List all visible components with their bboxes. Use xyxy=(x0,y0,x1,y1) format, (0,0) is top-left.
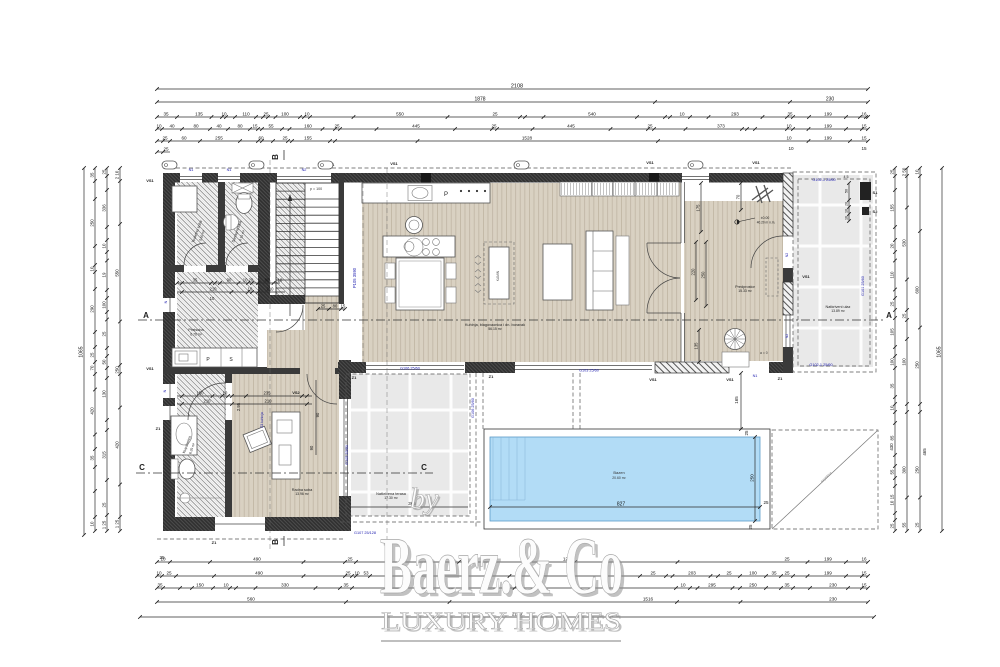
svg-text:VS1: VS1 xyxy=(390,161,398,166)
svg-text:Pretsoba: Pretsoba xyxy=(188,328,204,332)
svg-text:15: 15 xyxy=(252,124,258,129)
svg-text:10: 10 xyxy=(786,136,792,141)
svg-text:100: 100 xyxy=(749,571,757,576)
svg-text:70: 70 xyxy=(736,194,741,199)
svg-text:199: 199 xyxy=(824,557,832,562)
svg-text:110: 110 xyxy=(890,271,895,279)
svg-text:N1: N1 xyxy=(753,374,758,378)
svg-text:100: 100 xyxy=(890,358,895,366)
svg-text:VS1: VS1 xyxy=(646,160,654,165)
svg-text:16: 16 xyxy=(845,216,849,220)
svg-text:827: 827 xyxy=(617,502,626,508)
svg-text:N2: N2 xyxy=(302,168,307,172)
svg-text:160: 160 xyxy=(304,124,312,129)
svg-text:10: 10 xyxy=(679,112,685,117)
svg-text:490: 490 xyxy=(253,557,261,562)
svg-text:Z1: Z1 xyxy=(778,376,783,381)
svg-text:55: 55 xyxy=(890,469,895,474)
svg-text:VS1: VS1 xyxy=(649,377,657,382)
svg-text:P: P xyxy=(444,192,448,198)
svg-text:25: 25 xyxy=(763,500,769,505)
svg-text:25: 25 xyxy=(748,524,753,530)
svg-text:25: 25 xyxy=(650,571,656,576)
svg-text:1065: 1065 xyxy=(79,346,85,357)
svg-text:25: 25 xyxy=(726,571,732,576)
svg-text:35: 35 xyxy=(193,278,198,283)
svg-text:336: 336 xyxy=(102,204,107,212)
svg-text:420: 420 xyxy=(115,441,120,449)
svg-text:35: 35 xyxy=(343,583,349,588)
svg-text:15: 15 xyxy=(861,136,867,141)
svg-text:250: 250 xyxy=(749,583,757,588)
svg-text:G106 25/60: G106 25/60 xyxy=(471,398,475,418)
svg-text:G102-1 25/60: G102-1 25/60 xyxy=(809,363,832,367)
svg-text:by: by xyxy=(410,482,439,515)
svg-text:15.33 m²: 15.33 m² xyxy=(738,289,752,293)
svg-text:150: 150 xyxy=(196,583,204,588)
svg-text:1 25: 1 25 xyxy=(102,520,107,529)
svg-text:G101 25/60: G101 25/60 xyxy=(861,276,865,296)
svg-text:25: 25 xyxy=(890,169,895,174)
svg-text:C: C xyxy=(139,463,145,472)
svg-text:KAMIN: KAMIN xyxy=(496,270,500,281)
svg-text:LUXURY HOMES: LUXURY HOMES xyxy=(381,608,621,635)
svg-text:13.96 m²: 13.96 m² xyxy=(295,492,309,496)
svg-text:15: 15 xyxy=(861,583,867,588)
svg-text:25: 25 xyxy=(890,523,895,528)
svg-text:25: 25 xyxy=(345,571,351,576)
svg-text:315: 315 xyxy=(102,451,107,459)
svg-text:35: 35 xyxy=(890,383,895,388)
svg-text:25: 25 xyxy=(102,502,107,507)
svg-text:A: A xyxy=(143,311,149,320)
svg-text:B: B xyxy=(271,154,280,160)
svg-text:10: 10 xyxy=(788,146,794,151)
svg-text:50: 50 xyxy=(102,359,107,364)
svg-text:S2: S2 xyxy=(873,209,879,214)
svg-text:2.95: 2.95 xyxy=(236,402,241,411)
svg-text:290: 290 xyxy=(90,305,95,313)
svg-text:445: 445 xyxy=(567,124,575,129)
svg-text:235: 235 xyxy=(264,391,272,396)
svg-text:230: 230 xyxy=(826,97,835,103)
svg-text:P105 3590: P105 3590 xyxy=(352,267,357,288)
svg-text:13.89 m²: 13.89 m² xyxy=(831,309,845,313)
svg-text:25: 25 xyxy=(334,124,340,129)
svg-text:A: A xyxy=(886,311,892,320)
svg-text:70: 70 xyxy=(90,365,95,370)
svg-text:1516: 1516 xyxy=(643,597,654,602)
svg-text:420: 420 xyxy=(90,407,95,415)
svg-text:10: 10 xyxy=(102,243,107,248)
svg-text:25: 25 xyxy=(492,112,498,117)
svg-text:6.76 m²: 6.76 m² xyxy=(190,333,202,337)
svg-text:25: 25 xyxy=(162,136,168,141)
svg-text:10: 10 xyxy=(221,112,227,117)
svg-text:100: 100 xyxy=(102,301,107,309)
svg-text:110: 110 xyxy=(242,112,250,117)
svg-text:B: B xyxy=(271,539,280,545)
svg-text:10 20: 10 20 xyxy=(243,278,254,283)
svg-text:230: 230 xyxy=(829,597,837,602)
svg-text:40: 40 xyxy=(169,124,175,129)
svg-text:550: 550 xyxy=(115,269,120,277)
svg-text:85: 85 xyxy=(890,435,895,440)
svg-text:2 50: 2 50 xyxy=(902,167,907,176)
svg-text:15: 15 xyxy=(861,124,867,129)
svg-text:60: 60 xyxy=(258,136,264,141)
svg-text:203: 203 xyxy=(688,571,696,576)
svg-text:VS1: VS1 xyxy=(726,377,734,382)
svg-text:155: 155 xyxy=(304,136,312,141)
svg-text:373: 373 xyxy=(717,124,725,129)
svg-text:1528: 1528 xyxy=(522,136,533,141)
svg-text:210: 210 xyxy=(267,287,275,292)
svg-text:25: 25 xyxy=(902,313,907,318)
svg-text:250: 250 xyxy=(750,474,755,482)
svg-text:4 5: 4 5 xyxy=(844,175,849,179)
svg-text:10: 10 xyxy=(680,583,686,588)
svg-text:Z3 kuhinja: Z3 kuhinja xyxy=(260,412,264,428)
svg-text:100: 100 xyxy=(902,358,907,366)
svg-text:55: 55 xyxy=(902,522,907,527)
svg-text:25: 25 xyxy=(102,169,107,174)
svg-text:199: 199 xyxy=(824,136,832,141)
svg-text:220: 220 xyxy=(691,268,696,276)
svg-text:40.20 m n.m.: 40.20 m n.m. xyxy=(757,221,776,225)
svg-text:VS2: VS2 xyxy=(292,390,300,395)
svg-text:VS1: VS1 xyxy=(146,366,154,371)
svg-text:80: 80 xyxy=(265,278,270,283)
svg-text:2 10: 2 10 xyxy=(115,170,120,179)
svg-text:N: N xyxy=(163,389,167,392)
svg-text:35: 35 xyxy=(163,112,169,117)
svg-text:17.30 m²: 17.30 m² xyxy=(384,496,398,500)
svg-text:G102-1 25/60: G102-1 25/60 xyxy=(812,178,835,182)
svg-text:Z1: Z1 xyxy=(212,540,217,545)
svg-text:25: 25 xyxy=(784,557,790,562)
svg-text:490: 490 xyxy=(255,571,263,576)
svg-text:25: 25 xyxy=(166,571,172,576)
svg-text:N2: N2 xyxy=(785,253,789,257)
svg-text:20: 20 xyxy=(845,202,849,206)
svg-text:165: 165 xyxy=(734,396,739,404)
svg-text:25: 25 xyxy=(647,124,653,129)
svg-text:15: 15 xyxy=(861,146,867,151)
svg-text:1065: 1065 xyxy=(937,346,943,357)
svg-text:VS1: VS1 xyxy=(752,160,760,165)
svg-text:199: 199 xyxy=(824,112,832,117)
svg-text:Bazen: Bazen xyxy=(613,470,624,475)
svg-text:35: 35 xyxy=(787,112,793,117)
svg-text:a = 0: a = 0 xyxy=(760,351,768,355)
svg-text:465: 465 xyxy=(922,448,927,456)
svg-text:35: 35 xyxy=(157,583,163,588)
svg-text:80: 80 xyxy=(237,124,243,129)
svg-text:135: 135 xyxy=(195,112,203,117)
svg-text:255: 255 xyxy=(215,136,223,141)
svg-text:25: 25 xyxy=(321,304,326,309)
svg-text:G107 25/128: G107 25/128 xyxy=(354,531,376,535)
svg-text:25: 25 xyxy=(90,352,95,357)
svg-text:16: 16 xyxy=(861,112,867,117)
svg-text:55: 55 xyxy=(268,124,274,129)
svg-text:2108: 2108 xyxy=(511,84,523,90)
svg-text:155: 155 xyxy=(890,204,895,212)
svg-text:175: 175 xyxy=(696,204,701,212)
svg-text:10: 10 xyxy=(890,405,895,410)
svg-text:25: 25 xyxy=(163,147,169,152)
svg-text:15: 15 xyxy=(341,304,346,309)
svg-text:540: 540 xyxy=(588,112,596,117)
svg-text:25: 25 xyxy=(282,136,288,141)
svg-text:330: 330 xyxy=(281,583,289,588)
svg-text:19: 19 xyxy=(102,272,107,277)
svg-text:20: 20 xyxy=(890,243,895,248)
svg-text:10: 10 xyxy=(90,266,95,271)
svg-text:35: 35 xyxy=(90,172,95,177)
svg-text:293: 293 xyxy=(731,112,739,117)
svg-text:Z1: Z1 xyxy=(352,375,357,380)
svg-text:550: 550 xyxy=(396,112,404,117)
svg-text:530: 530 xyxy=(902,239,907,247)
svg-text:445: 445 xyxy=(412,124,420,129)
svg-text:40: 40 xyxy=(216,124,222,129)
svg-text:25: 25 xyxy=(491,124,497,129)
svg-text:10: 10 xyxy=(223,391,228,396)
svg-text:50: 50 xyxy=(845,189,849,193)
svg-text:C: C xyxy=(421,463,427,472)
svg-text:25: 25 xyxy=(915,522,920,527)
svg-text:Baerz.& Co: Baerz.& Co xyxy=(380,520,623,611)
svg-text:199: 199 xyxy=(824,571,832,576)
svg-text:10: 10 xyxy=(223,583,229,588)
svg-text:Z1: Z1 xyxy=(156,426,161,431)
svg-text:56.15 m²: 56.15 m² xyxy=(488,327,502,331)
svg-text:N1: N1 xyxy=(227,168,232,172)
svg-text:250: 250 xyxy=(115,366,120,374)
svg-text:10: 10 xyxy=(915,169,920,174)
svg-text:G105 25/60: G105 25/60 xyxy=(345,445,349,465)
svg-text:25: 25 xyxy=(744,430,749,436)
svg-text:80: 80 xyxy=(333,304,338,309)
svg-text:250: 250 xyxy=(915,466,920,474)
svg-text:10 15: 10 15 xyxy=(890,494,895,506)
svg-text:53: 53 xyxy=(363,571,369,576)
svg-text:G103 25/60: G103 25/60 xyxy=(579,369,599,373)
svg-text:250: 250 xyxy=(701,271,706,279)
svg-text:199: 199 xyxy=(824,124,832,129)
svg-text:10: 10 xyxy=(210,296,215,301)
svg-text:130: 130 xyxy=(102,390,107,398)
svg-text:150: 150 xyxy=(197,391,205,396)
svg-text:p = 100: p = 100 xyxy=(310,187,322,191)
svg-text:Z1: Z1 xyxy=(489,374,494,379)
svg-text:295: 295 xyxy=(708,583,716,588)
svg-text:90: 90 xyxy=(227,278,232,283)
svg-text:10: 10 xyxy=(278,278,283,283)
svg-text:35: 35 xyxy=(90,455,95,460)
svg-text:210: 210 xyxy=(204,399,212,404)
svg-text:430: 430 xyxy=(889,443,894,451)
svg-text:25: 25 xyxy=(890,301,895,306)
svg-text:230: 230 xyxy=(829,583,837,588)
svg-text:15: 15 xyxy=(861,571,867,576)
svg-text:N1: N1 xyxy=(189,168,194,172)
svg-text:210: 210 xyxy=(265,399,273,404)
svg-text:1 25: 1 25 xyxy=(115,519,120,528)
svg-text:10: 10 xyxy=(156,571,162,576)
svg-text:60: 60 xyxy=(181,136,187,141)
svg-text:S1: S1 xyxy=(873,190,879,195)
svg-text:VS1: VS1 xyxy=(802,274,810,279)
svg-text:25: 25 xyxy=(102,331,107,336)
svg-text:100: 100 xyxy=(281,112,289,117)
svg-text:250: 250 xyxy=(90,219,95,227)
svg-text:250: 250 xyxy=(915,361,920,369)
svg-text:10: 10 xyxy=(248,287,253,292)
svg-text:210: 210 xyxy=(210,287,218,292)
svg-text:10: 10 xyxy=(156,124,162,129)
svg-text:80: 80 xyxy=(193,124,199,129)
svg-text:600: 600 xyxy=(915,286,920,294)
svg-text:25: 25 xyxy=(784,571,790,576)
svg-text:20.60 m²: 20.60 m² xyxy=(612,476,626,480)
svg-text:VS1: VS1 xyxy=(146,178,154,183)
svg-text:10: 10 xyxy=(90,521,95,526)
svg-text:10: 10 xyxy=(786,124,792,129)
svg-text:35: 35 xyxy=(784,583,790,588)
svg-text:10: 10 xyxy=(304,112,310,117)
svg-text:N: N xyxy=(164,300,168,303)
svg-text:35: 35 xyxy=(771,571,777,576)
svg-text:25: 25 xyxy=(159,555,165,560)
svg-text:10: 10 xyxy=(845,209,849,213)
svg-text:10: 10 xyxy=(354,571,360,576)
svg-text:25: 25 xyxy=(263,112,269,117)
svg-text:±0.00: ±0.00 xyxy=(761,216,770,220)
svg-text:G106 25/60: G106 25/60 xyxy=(400,367,420,371)
svg-text:105: 105 xyxy=(890,328,895,336)
svg-text:560: 560 xyxy=(247,597,255,602)
svg-text:90: 90 xyxy=(309,445,314,450)
svg-text:25: 25 xyxy=(347,557,353,562)
svg-text:300: 300 xyxy=(902,466,907,474)
svg-text:16: 16 xyxy=(861,557,867,562)
svg-text:N2: N2 xyxy=(785,334,789,338)
svg-text:1878: 1878 xyxy=(474,97,485,103)
svg-text:135: 135 xyxy=(694,342,699,350)
